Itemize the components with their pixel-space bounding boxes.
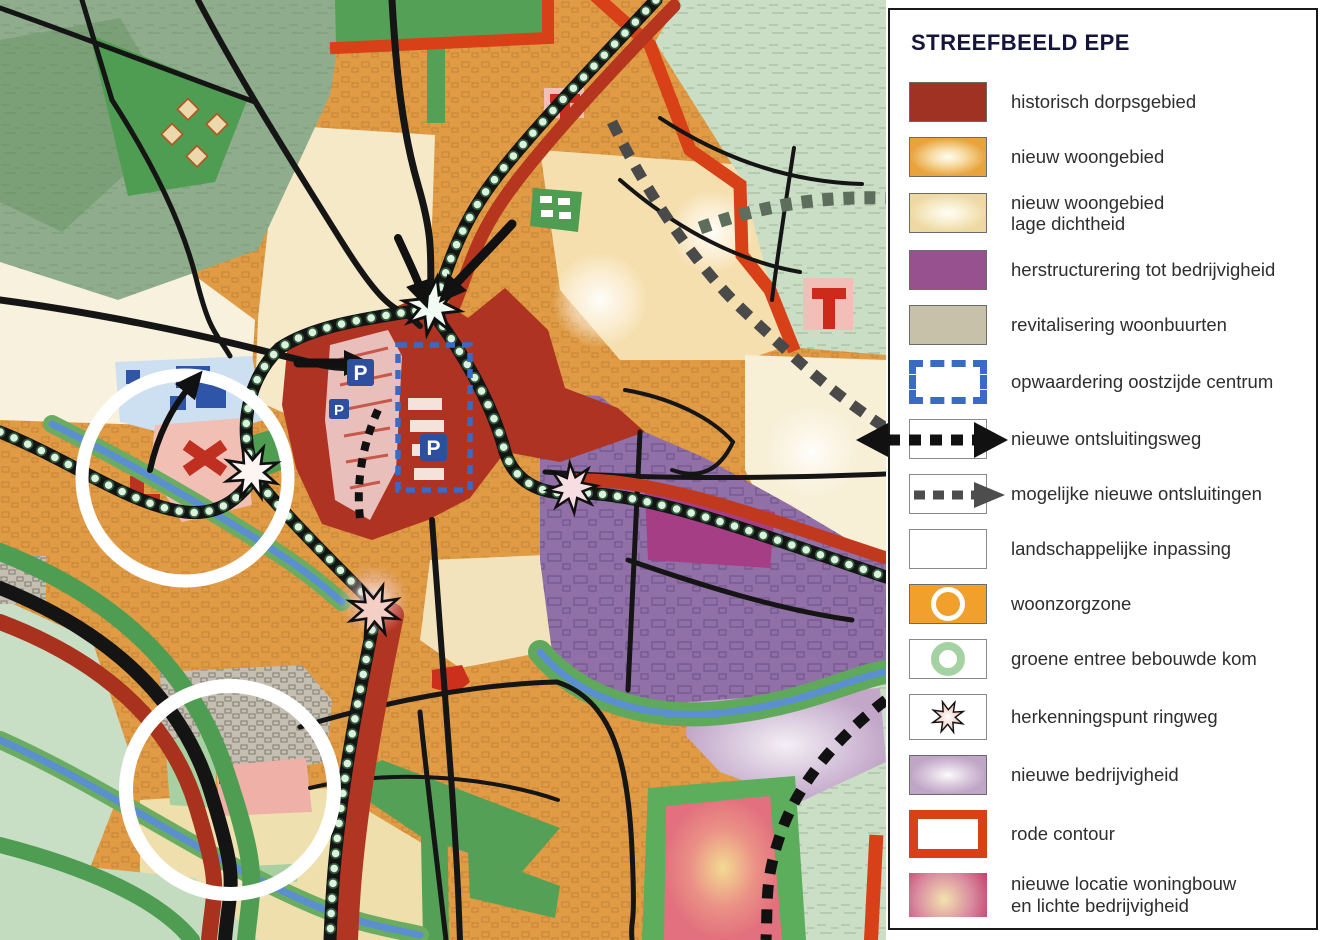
- star-icon: [926, 696, 970, 738]
- legend-item-label: rode contour: [1011, 823, 1115, 844]
- legend-item-woonzorgzone: woonzorgzone: [909, 584, 1302, 624]
- nieuw-woongebied-swatch: [909, 137, 987, 177]
- legend-item-label: nieuwe ontsluitingsweg: [1011, 428, 1201, 449]
- parking-marker: P: [347, 359, 374, 386]
- legend-item-label: nieuwe locatie woningbouw en lichte bedr…: [1011, 873, 1236, 916]
- legend-item-herstructurering-tot-bedrijvigheid: herstructurering tot bedrijvigheid: [909, 250, 1302, 290]
- mogelijke-ontsluitingen-swatch: [909, 474, 987, 514]
- legend-item-label: nieuwe bedrijvigheid: [1011, 764, 1179, 785]
- legend-item-label: herstructurering tot bedrijvigheid: [1011, 259, 1275, 280]
- legend-item-label: woonzorgzone: [1011, 593, 1131, 614]
- legend-item-label: revitalisering woonbuurten: [1011, 314, 1227, 335]
- legend-item-label: nieuw woongebied: [1011, 146, 1164, 167]
- legend-item-label: historisch dorpsgebied: [1011, 91, 1196, 112]
- green-ring-icon: [931, 642, 965, 676]
- page: P P P STREEFBEELD EPE historisch dorpsge…: [0, 0, 1324, 940]
- map-canvas: P P P: [0, 0, 886, 940]
- legend-item-groene-entree-bebouwde-kom: groene entree bebouwde kom: [909, 639, 1302, 679]
- nieuwe-bedrijvigheid-swatch: [909, 755, 987, 795]
- landschappelijke-inpassing-swatch: [909, 529, 987, 569]
- legend-item-nieuw-woongebied: nieuw woongebied: [909, 137, 1302, 177]
- single-arrow-icon: [908, 473, 1008, 517]
- legend-item-landschappelijke-inpassing: landschappelijke inpassing: [909, 529, 1302, 569]
- parking-marker: P: [420, 434, 447, 461]
- legend-item-label: nieuw woongebied lage dichtheid: [1011, 192, 1164, 235]
- historisch-dorpsgebied-swatch: [909, 82, 987, 122]
- nieuwe-ontsluitingsweg-swatch: [909, 419, 987, 459]
- legend-item-historisch-dorpsgebied: historisch dorpsgebied: [909, 82, 1302, 122]
- legend-item-mogelijke-nieuwe-ontsluitingen: mogelijke nieuwe ontsluitingen: [909, 474, 1302, 514]
- legend-item-revitalisering-woonbuurten: revitalisering woonbuurten: [909, 305, 1302, 345]
- double-arrow-icon: [854, 418, 1010, 462]
- nieuwe-locatie-swatch: [909, 873, 987, 917]
- legend-item-label: groene entree bebouwde kom: [1011, 648, 1257, 669]
- legend-panel: STREEFBEELD EPE historisch dorpsgebied n…: [888, 8, 1318, 930]
- nieuw-woongebied-lage-dichtheid-swatch: [909, 193, 987, 233]
- legend-item-nieuwe-bedrijvigheid: nieuwe bedrijvigheid: [909, 755, 1302, 795]
- legend-item-label: landschappelijke inpassing: [1011, 538, 1231, 559]
- legend-item-rode-contour: rode contour: [909, 810, 1302, 858]
- revitalisering-swatch: [909, 305, 987, 345]
- parking-label: P: [334, 402, 344, 419]
- legend-item-label: opwaardering oostzijde centrum: [1011, 371, 1273, 392]
- groene-entree-swatch: [909, 639, 987, 679]
- woonzorgzone-swatch: [909, 584, 987, 624]
- legend-item-nieuwe-ontsluitingsweg: nieuwe ontsluitingsweg: [909, 419, 1302, 459]
- legend-item-nieuwe-locatie-woningbouw: nieuwe locatie woningbouw en lichte bedr…: [909, 873, 1302, 917]
- legend-item-label: herkenningspunt ringweg: [1011, 706, 1218, 727]
- legend-item-opwaardering-oostzijde-centrum: opwaardering oostzijde centrum: [909, 360, 1302, 404]
- herstructurering-swatch: [909, 250, 987, 290]
- white-ring-icon: [931, 587, 965, 621]
- parking-label: P: [353, 362, 367, 385]
- parking-label: P: [426, 437, 440, 460]
- parking-marker: P: [329, 399, 349, 419]
- legend-item-label: mogelijke nieuwe ontsluitingen: [1011, 483, 1262, 504]
- rode-contour-swatch: [909, 810, 987, 858]
- legend-item-herkenningspunt-ringweg: herkenningspunt ringweg: [909, 694, 1302, 740]
- legend-item-nieuw-woongebied-lage-dichtheid: nieuw woongebied lage dichtheid: [909, 192, 1302, 235]
- herkenningspunt-swatch: [909, 694, 987, 740]
- legend-rows: historisch dorpsgebied nieuw woongebied …: [909, 82, 1302, 917]
- map: P P P: [0, 0, 886, 940]
- opwaardering-swatch: [909, 360, 987, 404]
- legend-title: STREEFBEELD EPE: [911, 30, 1302, 56]
